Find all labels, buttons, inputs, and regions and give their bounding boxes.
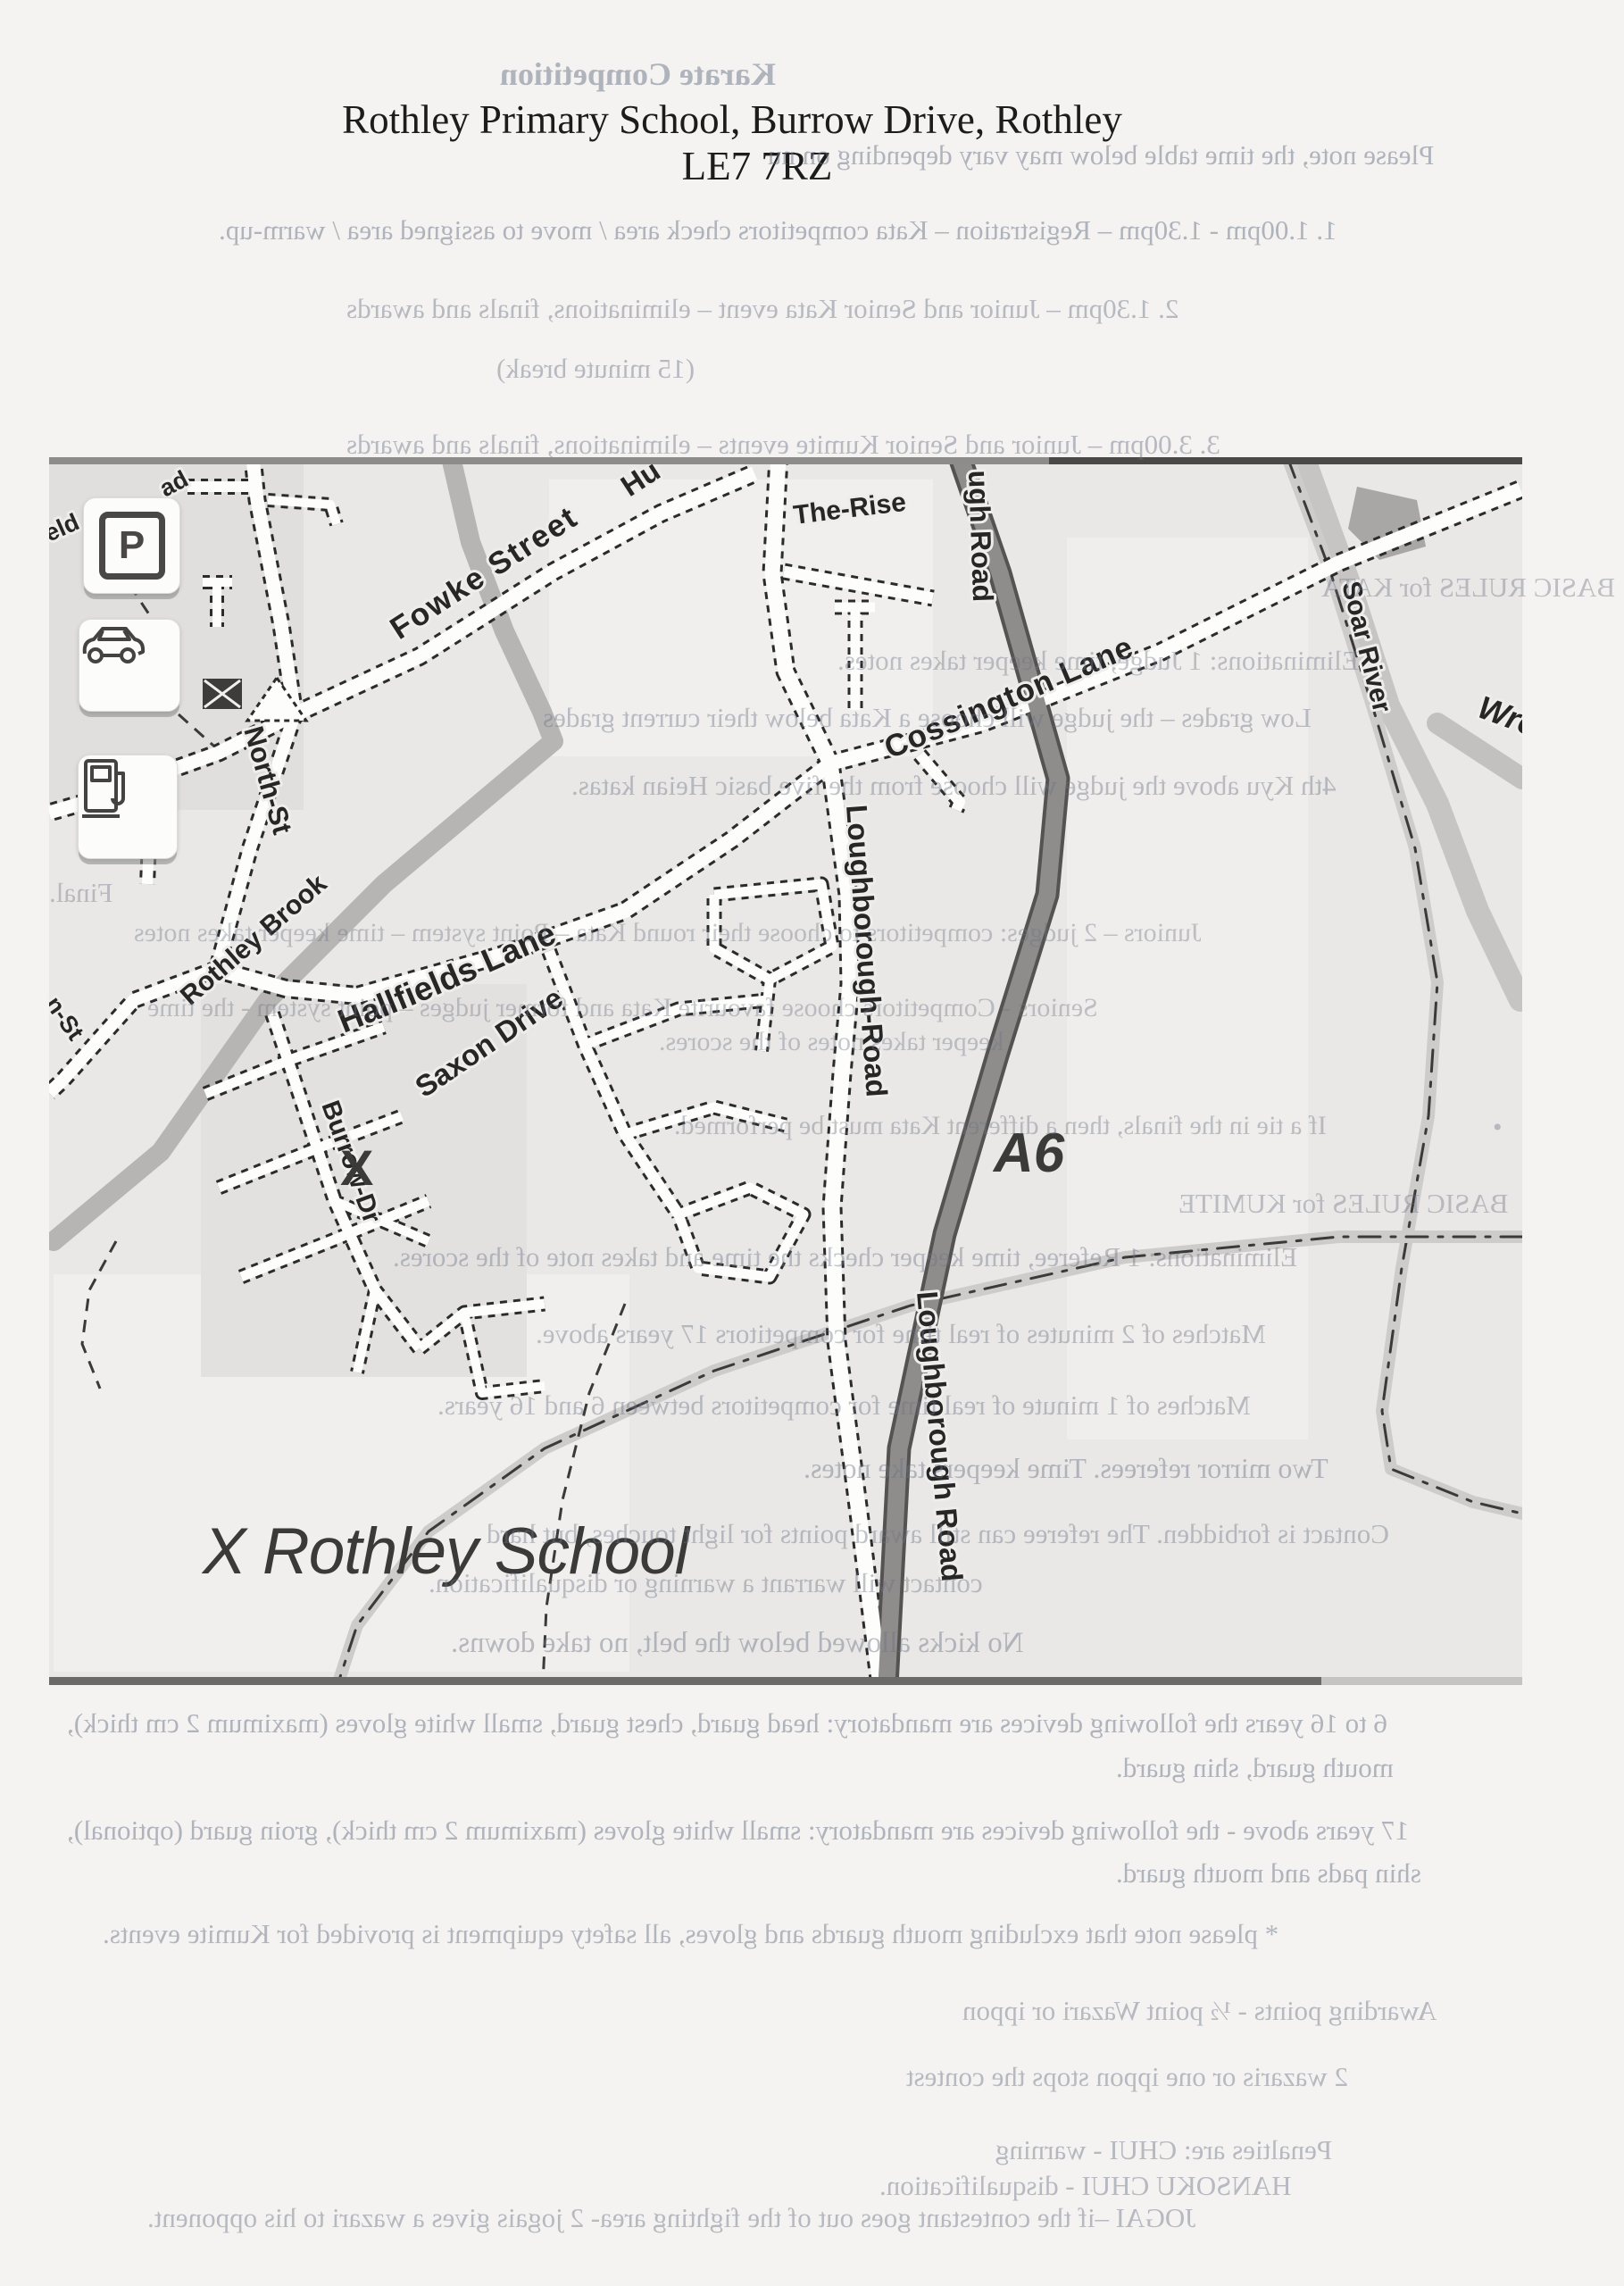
bleed-line: Please note, the time table below may va… xyxy=(768,139,1434,171)
rothley-school-annotation: X Rothley School xyxy=(201,1515,691,1588)
parking-button[interactable]: P xyxy=(83,497,180,594)
car-button[interactable] xyxy=(79,619,180,712)
school-x-marker: X xyxy=(340,1139,373,1196)
bleed-line: 1. 1.00pm - 1.30pm – Registration – Kata… xyxy=(219,214,1337,246)
street-label-fragment: n-St xyxy=(49,991,89,1045)
bleed-line: Karate Competition xyxy=(500,55,776,93)
bleed-line: mouth guard, shin guard. xyxy=(1116,1752,1394,1784)
bleed-line: 2. 1.30pm – Junior and Senior Kata event… xyxy=(346,293,1178,325)
page-title: Rothley Primary School, Burrow Drive, Ro… xyxy=(342,96,1122,143)
bleed-line: shin pads and mouth guard. xyxy=(1116,1857,1421,1890)
railway-line-east xyxy=(1287,457,1522,1514)
map-terrain xyxy=(49,457,1426,1672)
bleed-line: 2 wazaris or one ippon stops the contest xyxy=(906,2061,1348,2093)
postcode: LE7 7RZ xyxy=(682,143,833,189)
bleed-line: HANSOKU CHUI - disqualification. xyxy=(879,2170,1292,2202)
river-label-soar: Soar River xyxy=(1336,579,1396,716)
bleed-line: * please note that excluding mouth guard… xyxy=(103,1918,1278,1950)
bleed-line: 6 to 16 years the following devices are … xyxy=(67,1707,1387,1740)
fuel-button[interactable] xyxy=(78,755,178,859)
bleed-line: (15 minute break) xyxy=(496,353,695,385)
bleed-line: 3. 3.00pm – Junior and Senior Kumite eve… xyxy=(346,429,1220,461)
river-label-wreake-fragment: Wre xyxy=(1473,688,1522,744)
parking-icon: P xyxy=(99,512,165,580)
scanned-page: Rothley Primary School, Burrow Drive, Ro… xyxy=(0,0,1624,2286)
a6-road-label: A6 xyxy=(992,1122,1065,1184)
fuel-pump-icon xyxy=(79,755,136,822)
street-map: eld ad Fowke Street Hu The-Rise ugh Road… xyxy=(49,457,1522,1685)
bleed-line: 17 years above - the following devices a… xyxy=(67,1815,1409,1847)
map-canvas: eld ad Fowke Street Hu The-Rise ugh Road… xyxy=(49,457,1522,1685)
car-icon xyxy=(79,620,147,668)
bleed-line: Penalties are: CHUI - warning xyxy=(995,2134,1332,2166)
bleed-line: JOGAI –if the contestant goes out of the… xyxy=(147,2202,1195,2234)
street-label-loughborough-road-south: Loughborough Road xyxy=(911,1289,969,1582)
street-label-high-road-fragment: ugh Road xyxy=(962,470,999,603)
bleed-line: Awarding points - ½ point Wazari or ippo… xyxy=(962,1995,1437,2027)
